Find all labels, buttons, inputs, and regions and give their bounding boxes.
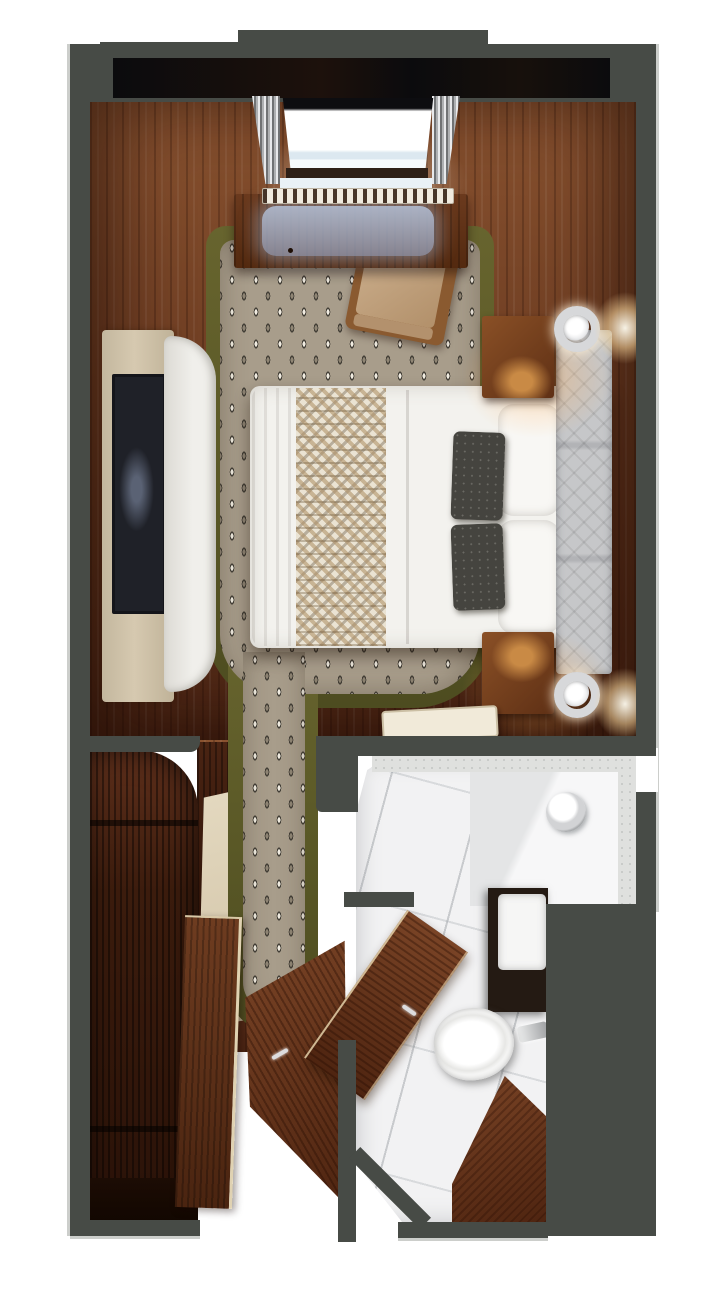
bathroom-wall-block	[546, 904, 656, 1236]
wall-left	[70, 44, 90, 1236]
window-glass	[278, 98, 438, 172]
bathroom-door-handle	[401, 1004, 416, 1016]
pillow-white-bottom	[498, 520, 560, 634]
desk-keyhole	[288, 248, 293, 253]
window-sill-beads	[262, 188, 454, 204]
vanity-sink	[498, 894, 546, 970]
carpet-hall	[243, 652, 305, 1012]
window-exterior-band	[113, 58, 610, 98]
floorplan-canvas: Stateroom floor plan — top-down 3D rende…	[0, 0, 726, 1289]
shower-tile-band-top	[372, 756, 626, 772]
tv-screen	[112, 374, 166, 614]
bed-foot-folds	[252, 388, 302, 646]
shower-bench	[470, 756, 636, 906]
window-sill-shadow	[286, 168, 428, 178]
nightstand-top	[482, 316, 554, 398]
bed-runner	[296, 388, 386, 646]
bed-fold-line	[406, 390, 409, 644]
bathroom-wall-top	[316, 736, 656, 756]
wall-lamp-bottom	[554, 672, 600, 718]
bathroom-wall-left-upper	[316, 736, 358, 812]
shower-tile-band-right	[618, 756, 636, 906]
entry-door-handle	[271, 1048, 289, 1060]
closet-wall-top	[70, 736, 200, 752]
pillow-dark-top	[450, 431, 505, 521]
shower-stool	[546, 792, 586, 832]
pillow-dark-bottom	[451, 523, 506, 611]
bathroom-wall-left-lower	[338, 1040, 356, 1242]
closet-wall-bottom	[70, 1220, 200, 1236]
settee	[164, 336, 216, 692]
window-sill-glass	[280, 178, 432, 188]
entry-side-panel	[175, 915, 242, 1209]
closet-shelf-upper	[84, 820, 198, 826]
bathroom-wall-stub	[344, 892, 414, 907]
nightstand-bottom	[482, 632, 554, 714]
